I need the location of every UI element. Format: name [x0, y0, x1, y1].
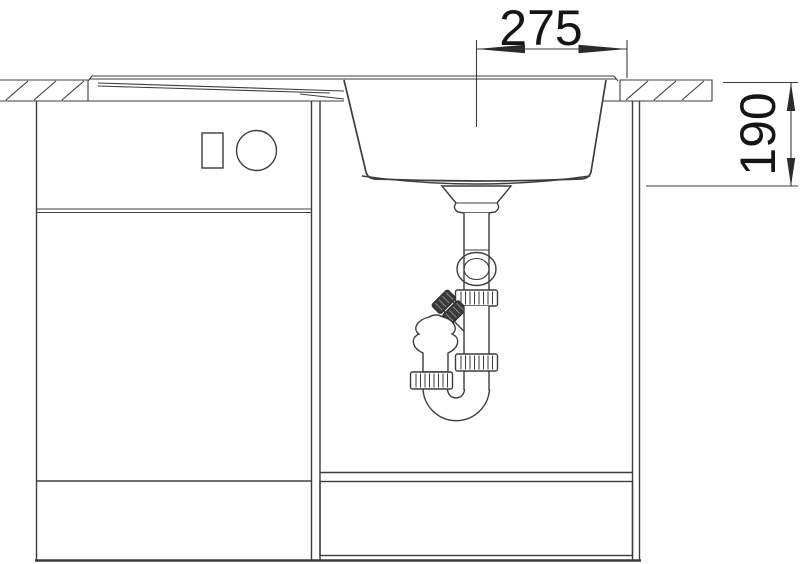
hatch-lines-right: [626, 81, 704, 100]
drawer-front: [320, 482, 633, 556]
door-symbol-circle: [237, 131, 277, 171]
sink-bowl: [344, 80, 606, 184]
cabinet: [35, 101, 641, 561]
arrowhead-right: [579, 45, 628, 53]
dimension-width-label: 275: [499, 0, 582, 56]
bowl-inner-wall: [344, 80, 606, 181]
countertop-right-section: [620, 80, 712, 101]
drain-pipe-lower: [464, 371, 489, 390]
left-cabinet-front: [37, 131, 312, 482]
bowl-outer-bottom: [362, 176, 590, 184]
dimension-width-275: 275: [477, 0, 628, 127]
technical-drawing-canvas: 275 190: [0, 0, 800, 564]
dimension-depth-190: 190: [646, 83, 798, 187]
union-nut-left: [411, 372, 453, 389]
sink-flange: [88, 76, 618, 81]
u-bend: [423, 389, 490, 421]
door-symbol-rectangle: [202, 133, 223, 168]
drainboard-profile: [98, 83, 344, 99]
sink-unit: [88, 76, 618, 184]
countertop-left-section: [0, 80, 88, 101]
drain-pipe-upper: [464, 213, 489, 290]
arrowhead-down: [787, 158, 795, 186]
hatch-lines-left: [6, 81, 84, 100]
outlet-bell-fitting: [413, 315, 457, 372]
drain-funnel: [442, 186, 511, 213]
drain-pipe-mid: [464, 306, 489, 354]
siphon-trap: [411, 186, 512, 421]
arrowhead-up: [787, 83, 795, 111]
sink-installation-diagram: 275 190: [0, 0, 800, 564]
union-nut-mid: [456, 354, 498, 371]
right-cabinet-front: [320, 473, 633, 556]
dimension-depth-label: 190: [730, 92, 786, 175]
